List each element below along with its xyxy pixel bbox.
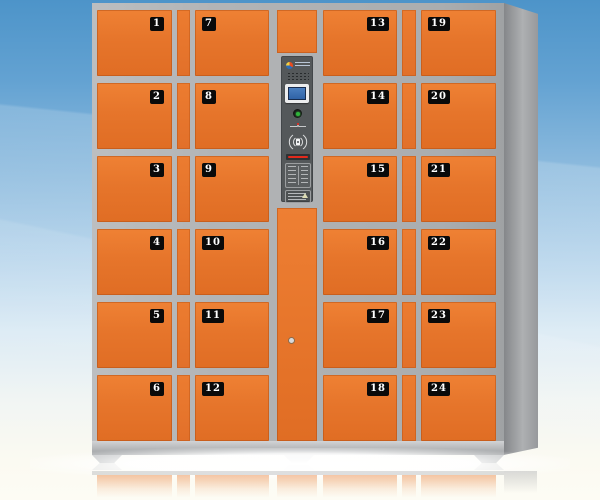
hinge-strip bbox=[177, 302, 190, 368]
hinge-strip bbox=[177, 83, 190, 149]
locker-cabinet: 1 2 3 4 5 6 7 8 9 10 11 12 bbox=[92, 3, 504, 455]
locker-door-14[interactable]: 14 bbox=[323, 83, 397, 149]
locker-door-7[interactable]: 7 bbox=[195, 10, 269, 76]
spec-label bbox=[285, 190, 311, 203]
locker-number-badge: 19 bbox=[428, 17, 450, 31]
locker-door-13[interactable]: 13 bbox=[323, 10, 397, 76]
instruction-divider bbox=[298, 166, 299, 185]
keyhole-icon bbox=[290, 123, 306, 130]
logo-circle-icon bbox=[286, 62, 293, 69]
cabinet-side-panel bbox=[504, 3, 538, 455]
instruction-text-right bbox=[301, 166, 309, 185]
locker-number-badge: 24 bbox=[428, 382, 450, 396]
locker-door-8[interactable]: 8 bbox=[195, 83, 269, 149]
locker-number-badge: 20 bbox=[428, 90, 450, 104]
locker-number-badge: 11 bbox=[202, 309, 224, 323]
locker-number-badge: 12 bbox=[202, 382, 224, 396]
warning-triangle-icon bbox=[302, 193, 308, 198]
floor-glow bbox=[30, 448, 570, 480]
scene: 1 2 3 4 5 6 7 8 9 10 11 12 bbox=[0, 0, 600, 500]
locker-door-11[interactable]: 11 bbox=[195, 302, 269, 368]
hinge-strip bbox=[177, 375, 190, 441]
card-slot[interactable] bbox=[286, 154, 310, 160]
hinge-strip bbox=[402, 83, 416, 149]
locker-number-badge: 10 bbox=[202, 236, 224, 250]
locker-number-badge: 17 bbox=[367, 309, 389, 323]
locker-door-16[interactable]: 16 bbox=[323, 229, 397, 295]
locker-number-badge: 1 bbox=[150, 17, 164, 31]
locker-number-badge: 22 bbox=[428, 236, 450, 250]
logo-text bbox=[295, 62, 310, 68]
locker-door-23[interactable]: 23 bbox=[421, 302, 496, 368]
central-filler-panel bbox=[277, 10, 317, 53]
lcd-screen-display bbox=[288, 87, 306, 100]
locker-number-badge: 2 bbox=[150, 90, 164, 104]
locker-number-badge: 3 bbox=[150, 163, 164, 177]
locker-number-badge: 16 bbox=[367, 236, 389, 250]
keyhole-dot bbox=[297, 123, 299, 125]
locker-door-17[interactable]: 17 bbox=[323, 302, 397, 368]
locker-door-21[interactable]: 21 bbox=[421, 156, 496, 222]
hinge-strip bbox=[402, 229, 416, 295]
locker-door-5[interactable]: 5 bbox=[97, 302, 172, 368]
speaker-grille-icon bbox=[287, 72, 309, 81]
hinge-strip bbox=[177, 10, 190, 76]
locker-number-badge: 5 bbox=[150, 309, 164, 323]
hinge-strip bbox=[402, 375, 416, 441]
hinge-strip bbox=[402, 302, 416, 368]
locker-door-24[interactable]: 24 bbox=[421, 375, 496, 441]
locker-number-badge: 15 bbox=[367, 163, 389, 177]
card-slot-opening bbox=[288, 156, 308, 158]
locker-number-badge: 4 bbox=[150, 236, 164, 250]
hinge-strip bbox=[177, 229, 190, 295]
locker-number-badge: 6 bbox=[150, 382, 164, 396]
lock-icon bbox=[289, 338, 294, 343]
hinge-strip bbox=[177, 156, 190, 222]
locker-number-badge: 21 bbox=[428, 163, 450, 177]
rfid-reader-icon[interactable] bbox=[283, 131, 313, 153]
confirm-button-light bbox=[296, 112, 300, 116]
control-panel bbox=[281, 56, 313, 202]
locker-number-badge: 23 bbox=[428, 309, 450, 323]
locker-door-3[interactable]: 3 bbox=[97, 156, 172, 222]
locker-number-badge: 14 bbox=[367, 90, 389, 104]
hinge-strip bbox=[402, 10, 416, 76]
locker-number-badge: 8 bbox=[202, 90, 216, 104]
confirm-button[interactable] bbox=[293, 109, 302, 118]
locker-door-9[interactable]: 9 bbox=[195, 156, 269, 222]
locker-number-badge: 18 bbox=[367, 382, 389, 396]
locker-door-4[interactable]: 4 bbox=[97, 229, 172, 295]
locker-door-12[interactable]: 12 bbox=[195, 375, 269, 441]
locker-door-2[interactable]: 2 bbox=[97, 83, 172, 149]
locker-door-15[interactable]: 15 bbox=[323, 156, 397, 222]
locker-door-6[interactable]: 6 bbox=[97, 375, 172, 441]
locker-door-10[interactable]: 10 bbox=[195, 229, 269, 295]
locker-door-1[interactable]: 1 bbox=[97, 10, 172, 76]
locker-door-19[interactable]: 19 bbox=[421, 10, 496, 76]
locker-number-badge: 7 bbox=[202, 17, 216, 31]
central-service-door[interactable] bbox=[277, 208, 317, 441]
locker-number-badge: 13 bbox=[367, 17, 389, 31]
hinge-strip bbox=[402, 156, 416, 222]
brand-logo-icon bbox=[286, 61, 310, 69]
locker-door-20[interactable]: 20 bbox=[421, 83, 496, 149]
locker-door-18[interactable]: 18 bbox=[323, 375, 397, 441]
locker-door-22[interactable]: 22 bbox=[421, 229, 496, 295]
instruction-label bbox=[285, 163, 311, 188]
instruction-text-left bbox=[288, 166, 296, 185]
locker-number-badge: 9 bbox=[202, 163, 216, 177]
lcd-screen bbox=[285, 84, 309, 103]
